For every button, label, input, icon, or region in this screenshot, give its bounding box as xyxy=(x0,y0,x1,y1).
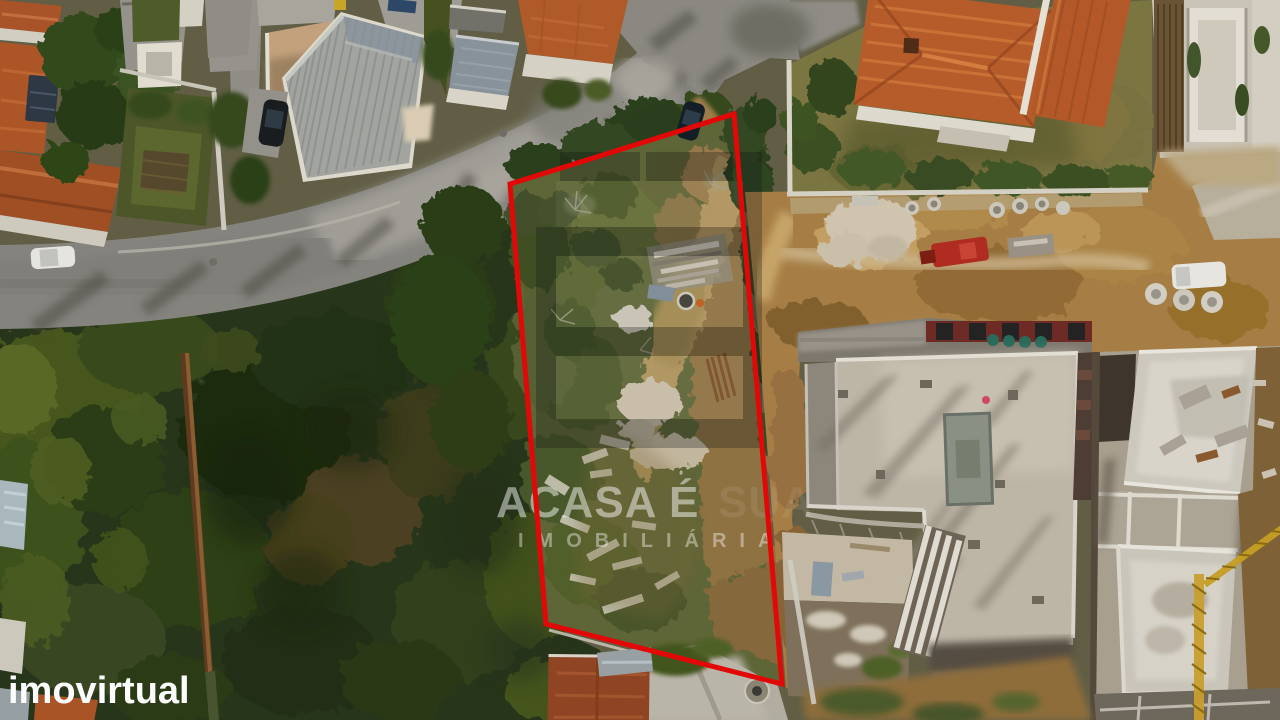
svg-text:imovirtual: imovirtual xyxy=(8,670,190,712)
svg-text:IMOBILIÁRIA: IMOBILIÁRIA xyxy=(518,529,785,552)
svg-text:ACASA É: ACASA É xyxy=(496,477,699,527)
